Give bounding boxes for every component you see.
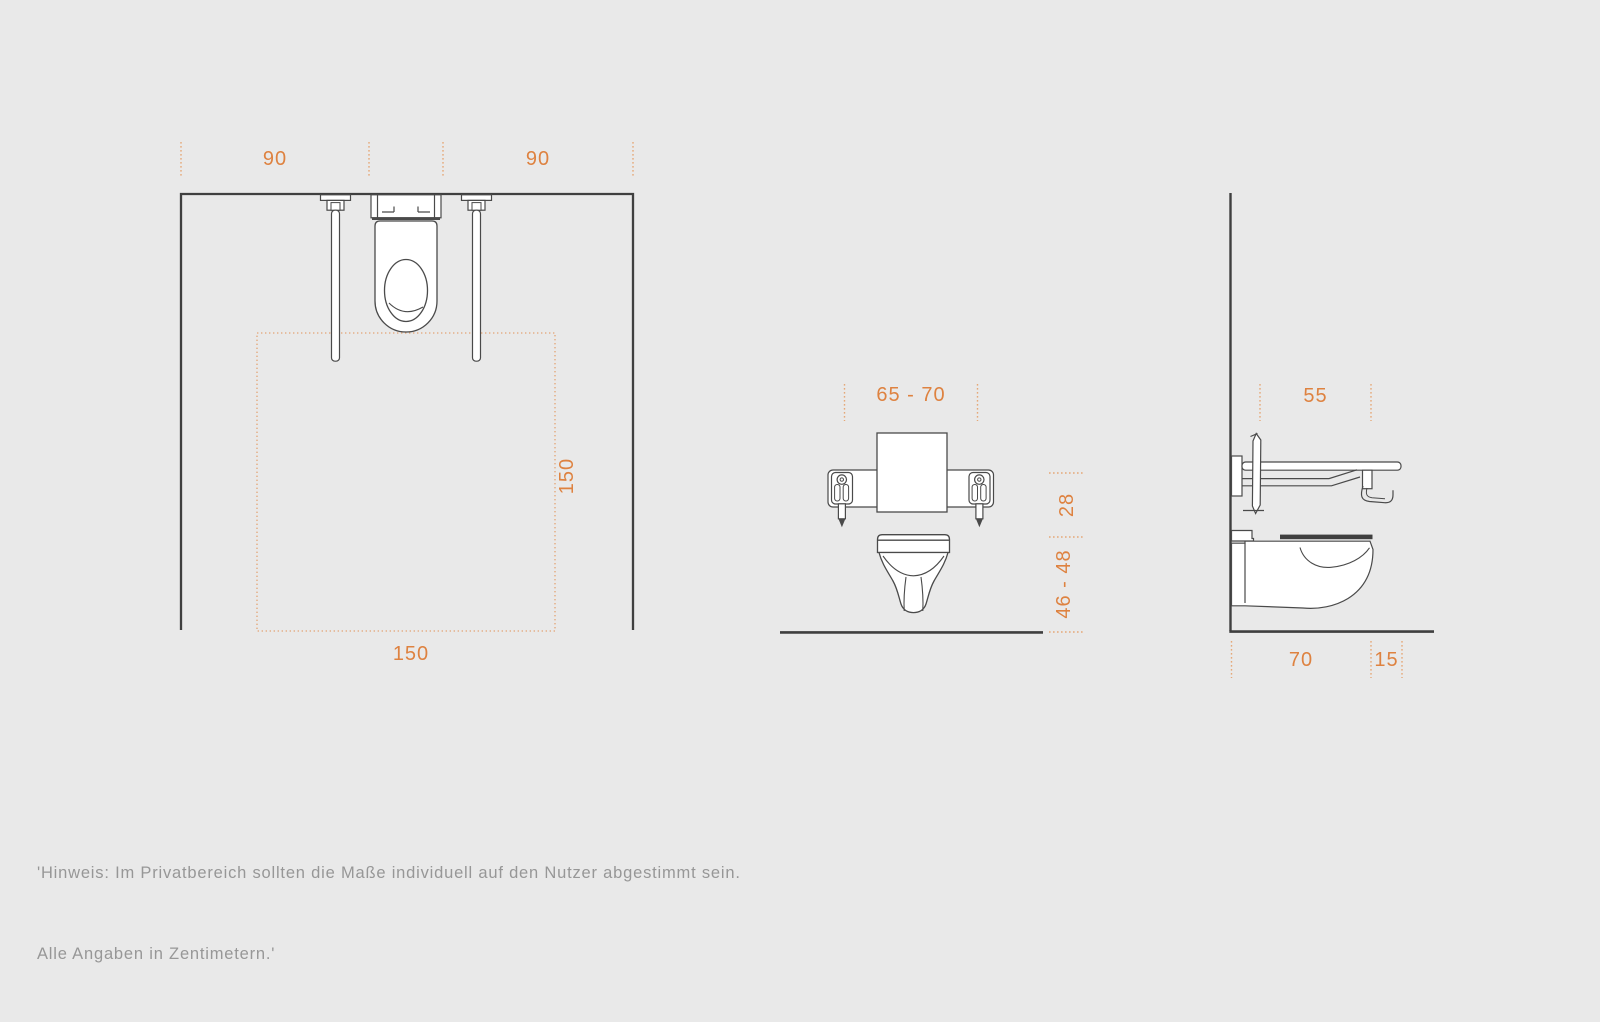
side-view-drawing: 55 70 15: [1229, 193, 1434, 678]
side-wc-bowl: [1232, 531, 1374, 609]
side-backrest-blade: [1243, 434, 1264, 514]
plan-dim-maneuvering-width: 150: [393, 643, 429, 665]
front-dim-seat-to-bar: 28: [1056, 493, 1078, 517]
front-dim-seat-height: 46 - 48: [1053, 549, 1075, 618]
barrier-free-wc-dimension-diagram: 90 90 150 150: [0, 0, 1600, 900]
front-dim-grab-bar-span: 65 - 70: [876, 384, 945, 406]
plan-view-drawing: 90 90 150 150: [181, 142, 633, 665]
front-wc-bowl: [878, 535, 950, 613]
plan-cistern: [371, 195, 441, 218]
side-dim-bar-overhang: 15: [1374, 649, 1398, 671]
footnote: 'Hinweis: Im Privatbereich sollten die M…: [37, 806, 741, 1022]
front-grab-bar-hinge-left: [832, 473, 853, 528]
plan-dim-right-clearance: 90: [526, 148, 550, 170]
plan-dim-left-clearance: 90: [263, 148, 287, 170]
plan-grab-bar-left: [321, 195, 351, 361]
footnote-line-1: 'Hinweis: Im Privatbereich sollten die M…: [37, 860, 741, 887]
side-dim-grab-bar-depth: 55: [1303, 385, 1327, 407]
plan-seat-hinge-bar: [372, 217, 440, 220]
front-view-drawing: 65 - 70 28 46 - 48: [780, 384, 1084, 632]
diagram-canvas: 90 90 150 150: [0, 0, 1600, 900]
plan-dim-maneuvering-depth: 150: [556, 458, 578, 494]
front-cistern: [877, 433, 947, 512]
plan-clearance-area: [257, 333, 555, 631]
footnote-line-2: Alle Angaben in Zentimetern.': [37, 941, 741, 968]
plan-grab-bar-right: [462, 195, 492, 361]
plan-wc-bowl: [375, 221, 437, 332]
plan-dimension-ticks: [181, 142, 633, 178]
side-wc-seat: [1280, 535, 1373, 540]
side-dim-wc-depth: 70: [1289, 649, 1313, 671]
front-grab-bar-hinge-right: [969, 473, 990, 528]
